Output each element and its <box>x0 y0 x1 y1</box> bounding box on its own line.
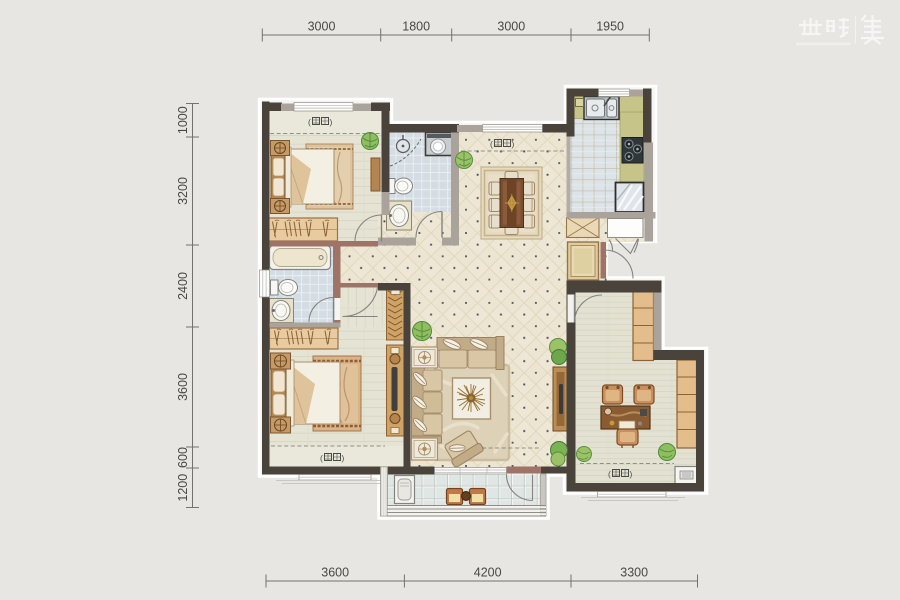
svg-text:1950: 1950 <box>596 20 624 34</box>
svg-text:3200: 3200 <box>176 177 190 205</box>
svg-text:4200: 4200 <box>474 566 502 580</box>
svg-text:3000: 3000 <box>308 20 336 34</box>
svg-text:1000: 1000 <box>176 106 190 134</box>
svg-text:1800: 1800 <box>402 20 430 34</box>
svg-text:): ) <box>512 139 515 149</box>
svg-text:3600: 3600 <box>176 373 190 401</box>
svg-text:3300: 3300 <box>620 566 648 580</box>
svg-text:2400: 2400 <box>176 272 190 300</box>
svg-text:): ) <box>330 117 333 127</box>
svg-text:): ) <box>630 469 633 479</box>
svg-text:600: 600 <box>176 447 190 468</box>
svg-text:(: ( <box>308 117 311 127</box>
svg-text:3600: 3600 <box>321 566 349 580</box>
svg-text:): ) <box>342 453 345 463</box>
svg-text:(: ( <box>608 469 611 479</box>
svg-text:(: ( <box>490 139 493 149</box>
svg-text:3000: 3000 <box>497 20 525 34</box>
svg-text:1200: 1200 <box>176 474 190 502</box>
svg-text:(: ( <box>320 453 323 463</box>
